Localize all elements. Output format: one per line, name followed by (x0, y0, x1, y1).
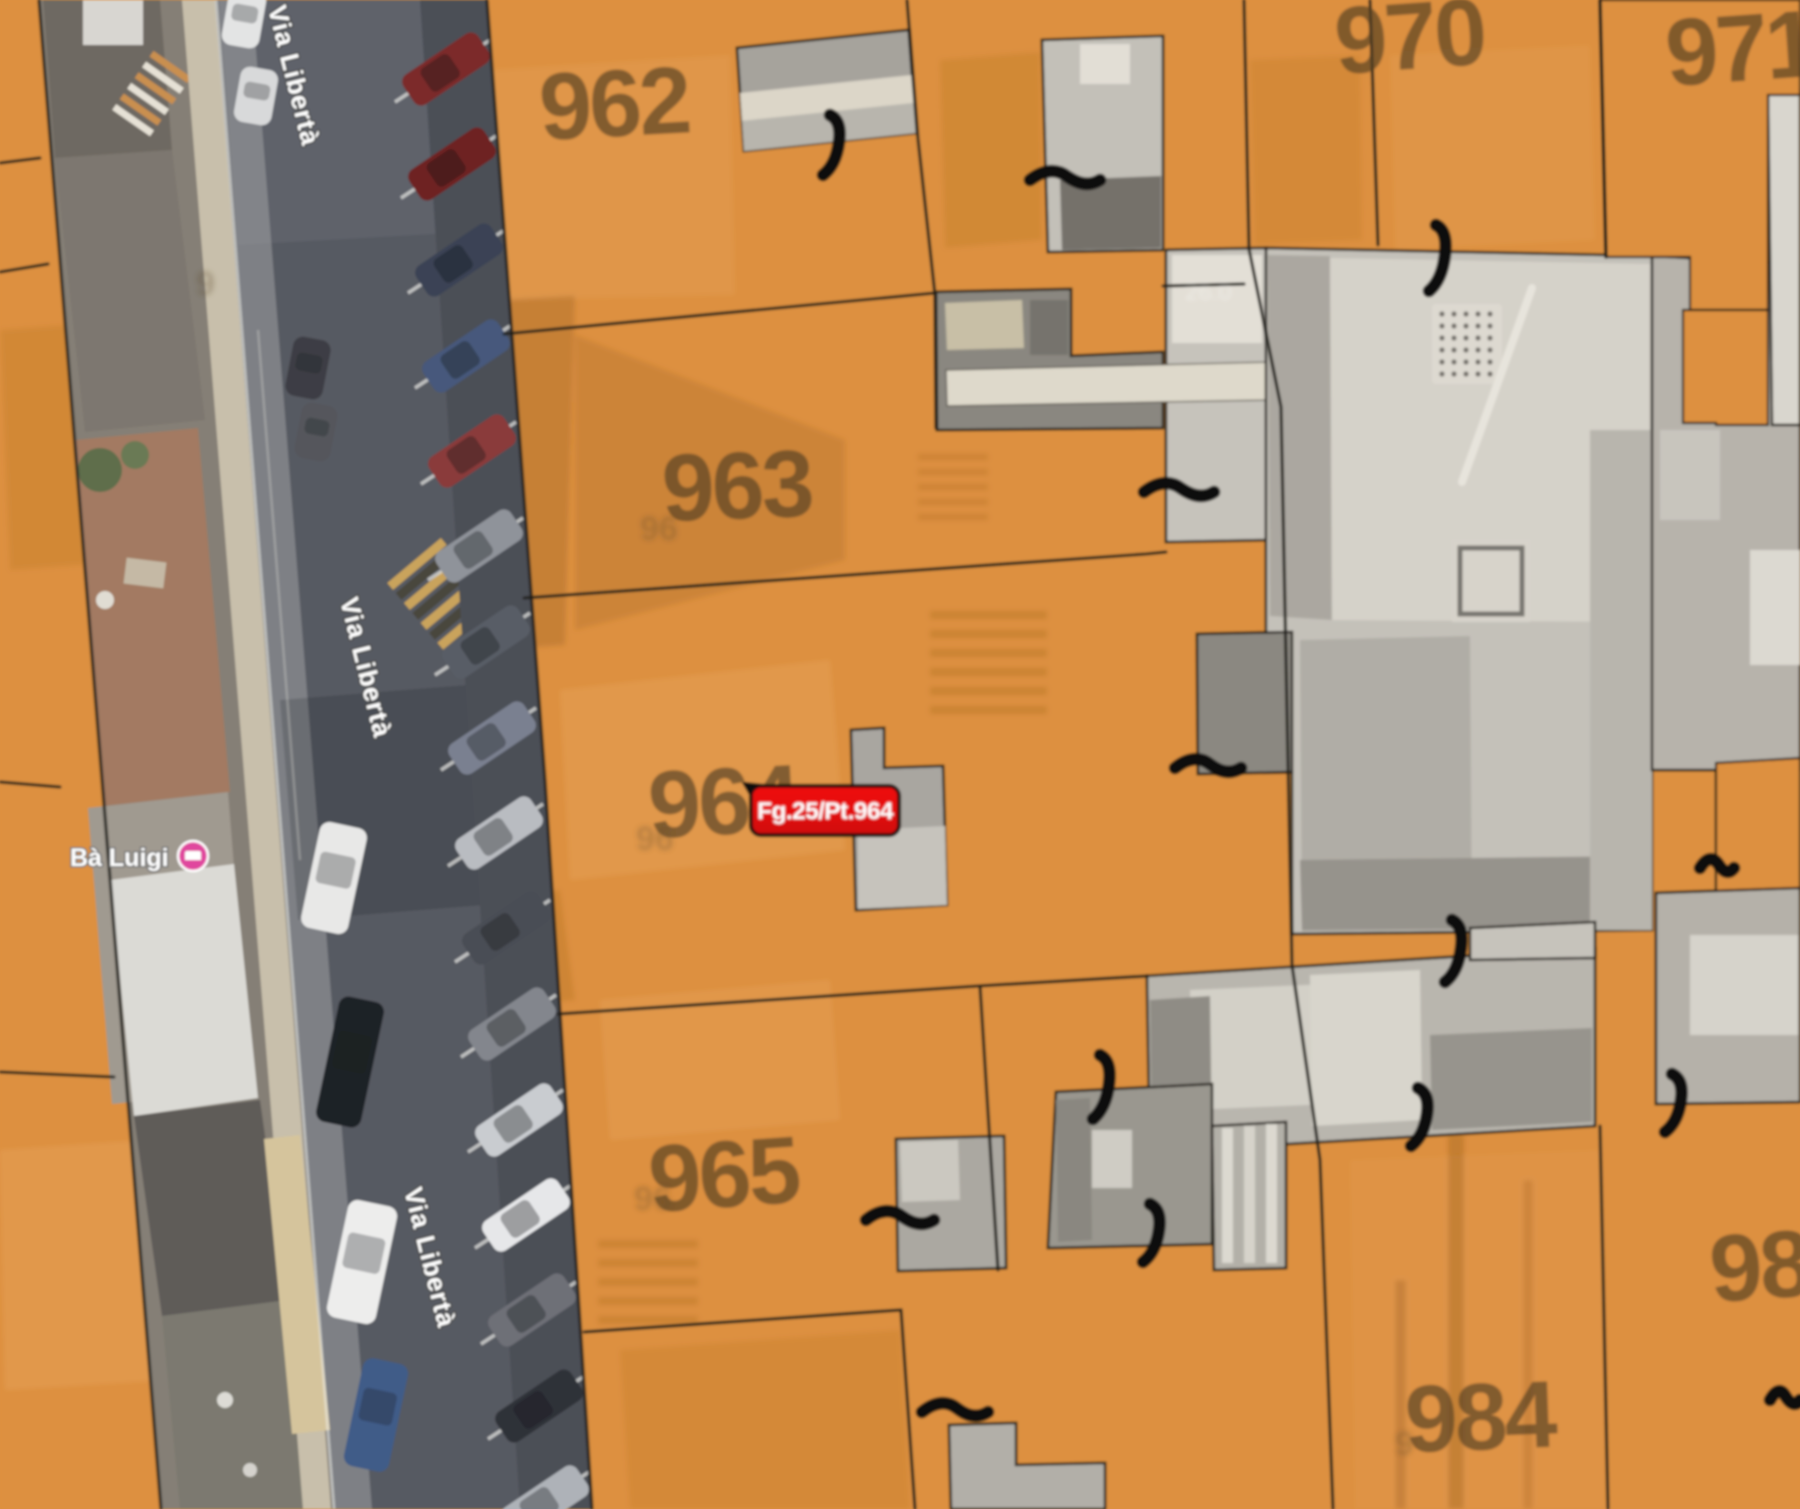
svg-text:Bà Luigi: Bà Luigi (70, 844, 169, 872)
svg-text:9: 9 (1395, 1425, 1414, 1463)
svg-text:96: 96 (634, 1180, 672, 1218)
svg-text:96: 96 (640, 510, 678, 548)
svg-text:970: 970 (1331, 0, 1488, 95)
svg-text:96: 96 (636, 820, 674, 858)
svg-text:98: 98 (1706, 1210, 1800, 1323)
svg-text:962: 962 (537, 47, 692, 161)
svg-text:26.0: 26.0 (1185, 279, 1232, 306)
svg-text:9: 9 (196, 265, 215, 303)
svg-text:963: 963 (660, 431, 813, 542)
svg-text:Fg.25/Pt.964: Fg.25/Pt.964 (757, 798, 894, 825)
svg-text:984: 984 (1403, 1362, 1559, 1473)
svg-text:971: 971 (1662, 0, 1800, 107)
